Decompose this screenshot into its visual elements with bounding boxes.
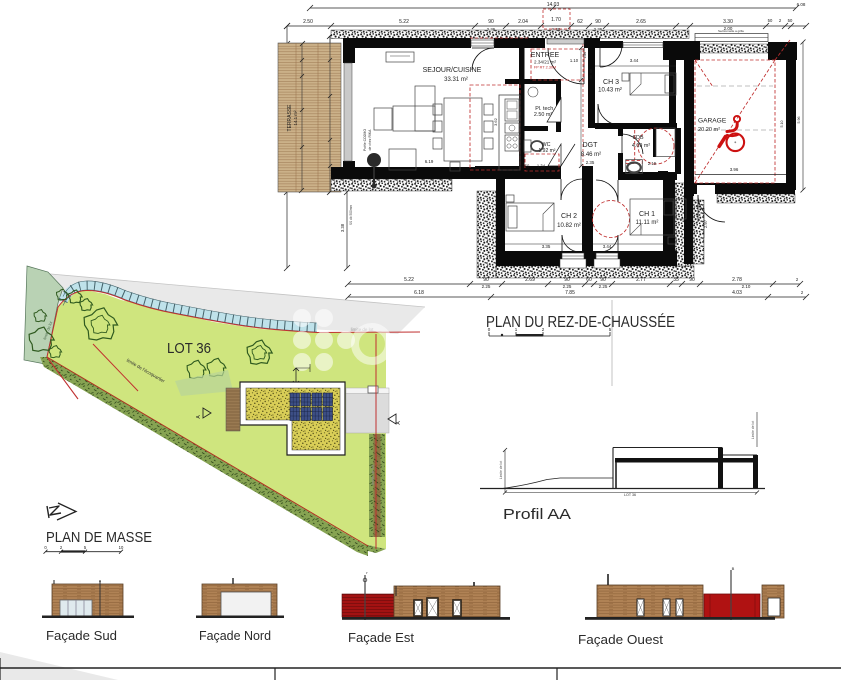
svg-text:LOT 36: LOT 36 — [624, 493, 636, 497]
svg-text:Façade Sud: Façade Sud — [46, 629, 117, 643]
svg-text:CH 3: CH 3 — [603, 79, 619, 86]
svg-text:1.92 m²: 1.92 m² — [539, 148, 556, 154]
svg-text:Façade Ouest: Façade Ouest — [578, 633, 664, 647]
svg-text:Façade Est: Façade Est — [348, 631, 415, 645]
svg-text:2.50: 2.50 — [303, 19, 313, 25]
svg-text:1.34: 1.34 — [537, 164, 546, 169]
svg-text:2.50 m²: 2.50 m² — [534, 112, 552, 118]
svg-text:ENTREE: ENTREE — [531, 52, 560, 59]
svg-text:CH 2: CH 2 — [561, 213, 577, 220]
svg-text:Sectionnelle a grille: Sectionnelle a grille — [718, 29, 744, 33]
svg-text:2.25: 2.25 — [482, 284, 491, 289]
svg-text:3.35: 3.35 — [542, 244, 551, 249]
svg-text:90: 90 — [600, 277, 606, 283]
svg-text:6.08: 6.08 — [797, 2, 806, 7]
svg-text:60: 60 — [525, 164, 530, 169]
svg-text:60: 60 — [586, 277, 592, 283]
svg-text:5.22: 5.22 — [399, 19, 409, 25]
svg-text:8.46 m²: 8.46 m² — [581, 152, 601, 158]
svg-text:5.10: 5.10 — [780, 121, 784, 128]
svg-text:3.44: 3.44 — [603, 244, 612, 249]
svg-text:PLAN DE MASSE: PLAN DE MASSE — [46, 529, 152, 546]
svg-text:2.78: 2.78 — [732, 277, 742, 283]
svg-text:10: 10 — [119, 545, 124, 550]
svg-text:14.03: 14.03 — [547, 2, 560, 8]
svg-text:SEJOUR/CUISINE: SEJOUR/CUISINE — [423, 67, 482, 74]
svg-text:33.31 m²: 33.31 m² — [444, 77, 468, 83]
svg-text:SDB: SDB — [632, 135, 643, 141]
svg-text:3.38: 3.38 — [340, 223, 345, 232]
svg-text:60: 60 — [589, 69, 593, 73]
svg-text:3.30: 3.30 — [723, 19, 733, 25]
svg-text:5.96: 5.96 — [797, 117, 801, 124]
svg-text:90: 90 — [689, 277, 695, 283]
svg-text:2.65: 2.65 — [636, 19, 646, 25]
svg-text:90: 90 — [483, 277, 489, 283]
svg-text:14.1 m²: 14.1 m² — [293, 110, 298, 125]
svg-text:7.85: 7.85 — [565, 290, 575, 296]
svg-text:4.09 m²: 4.09 m² — [632, 143, 650, 149]
svg-text:90: 90 — [595, 19, 601, 25]
svg-text:3.96: 3.96 — [730, 167, 739, 172]
svg-text:90: 90 — [589, 75, 593, 79]
svg-text:4.03: 4.03 — [732, 290, 742, 296]
svg-text:Façade Nord: Façade Nord — [199, 629, 271, 643]
svg-text:2.04: 2.04 — [518, 19, 528, 25]
svg-text:2.25: 2.25 — [599, 284, 608, 289]
svg-text:2.35: 2.35 — [586, 160, 595, 165]
svg-text:1.10: 1.10 — [570, 58, 579, 63]
svg-text:6.19: 6.19 — [425, 159, 434, 164]
svg-text:1.26: 1.26 — [583, 52, 587, 59]
svg-text:5.22: 5.22 — [404, 277, 414, 283]
svg-text:Profil AA: Profil AA — [503, 506, 571, 523]
svg-text:6.18: 6.18 — [414, 290, 424, 296]
svg-text:11.11 m²: 11.11 m² — [636, 220, 659, 226]
svg-text:SS db 500mm: SS db 500mm — [349, 205, 353, 226]
svg-text:Limite de lot: Limite de lot — [751, 421, 755, 439]
svg-text:B: B — [732, 566, 735, 571]
svg-text:10.82 m²: 10.82 m² — [557, 223, 581, 229]
svg-text:35: 35 — [673, 277, 679, 283]
svg-text:3.62: 3.62 — [493, 117, 498, 126]
svg-text:2.34/21 m²: 2.34/21 m² — [534, 60, 556, 65]
svg-text:50: 50 — [768, 18, 773, 23]
svg-text:2.19: 2.19 — [648, 161, 657, 166]
svg-text:Limite de lot: Limite de lot — [499, 461, 503, 479]
svg-text:90: 90 — [564, 277, 570, 283]
svg-text:20.20 m²: 20.20 m² — [698, 127, 720, 133]
svg-text:90: 90 — [488, 19, 494, 25]
svg-text:GARAGE: GARAGE — [698, 118, 727, 125]
svg-text:50: 50 — [788, 18, 793, 23]
svg-text:2.10: 2.10 — [742, 284, 751, 289]
svg-text:DGT: DGT — [583, 142, 599, 149]
svg-text:CH 1: CH 1 — [639, 211, 655, 218]
svg-text:2.69: 2.69 — [525, 277, 535, 283]
svg-text:62: 62 — [577, 19, 583, 25]
svg-text:Poêle CO2MO: Poêle CO2MO — [363, 129, 367, 151]
svg-text:de chez RIKA: de chez RIKA — [368, 129, 372, 150]
svg-text:FP RT 2.30M: FP RT 2.30M — [534, 66, 556, 70]
svg-text:2.77: 2.77 — [636, 277, 646, 283]
svg-text:2.25: 2.25 — [563, 284, 572, 289]
svg-text:LOT 36: LOT 36 — [167, 340, 211, 357]
svg-text:10.43 m²: 10.43 m² — [598, 88, 622, 94]
svg-text:1.70: 1.70 — [551, 17, 561, 23]
svg-text:limite de lot: limite de lot — [370, 464, 375, 485]
svg-text:3.44: 3.44 — [630, 58, 639, 63]
